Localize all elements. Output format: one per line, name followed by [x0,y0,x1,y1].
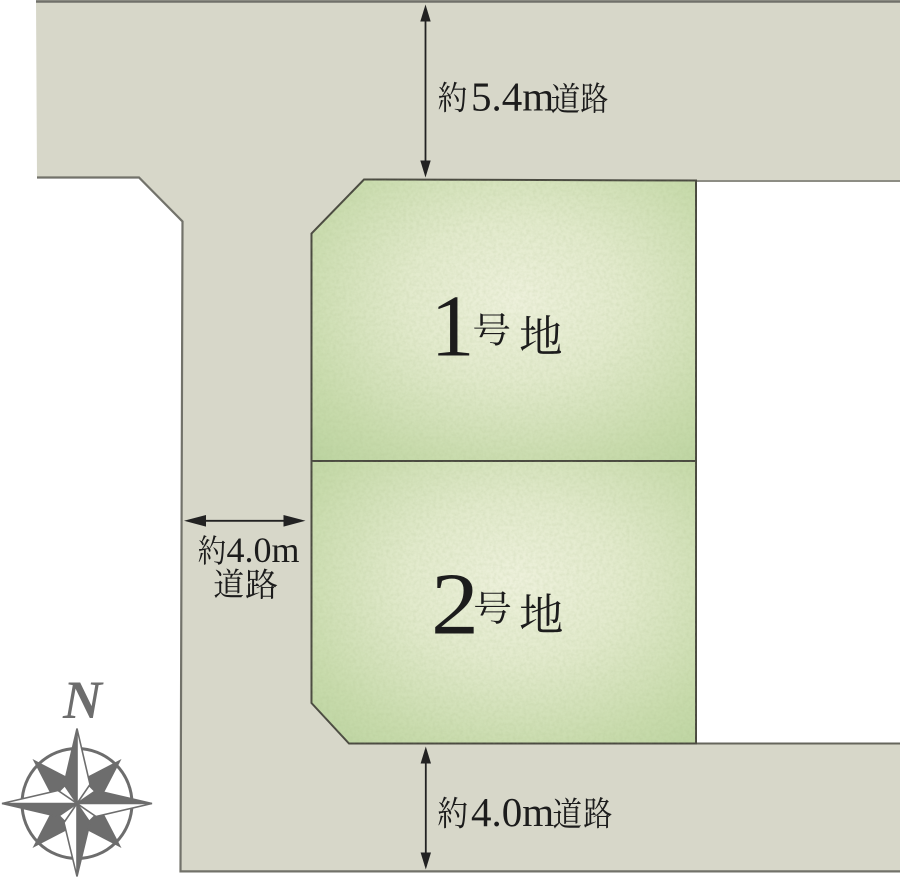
svg-text:N: N [62,670,104,730]
svg-text:5.4m: 5.4m [471,74,554,120]
svg-text:1: 1 [431,279,475,376]
svg-text:2: 2 [431,555,479,653]
svg-text:4.0m: 4.0m [471,789,554,835]
svg-text:4.0m: 4.0m [227,530,300,570]
